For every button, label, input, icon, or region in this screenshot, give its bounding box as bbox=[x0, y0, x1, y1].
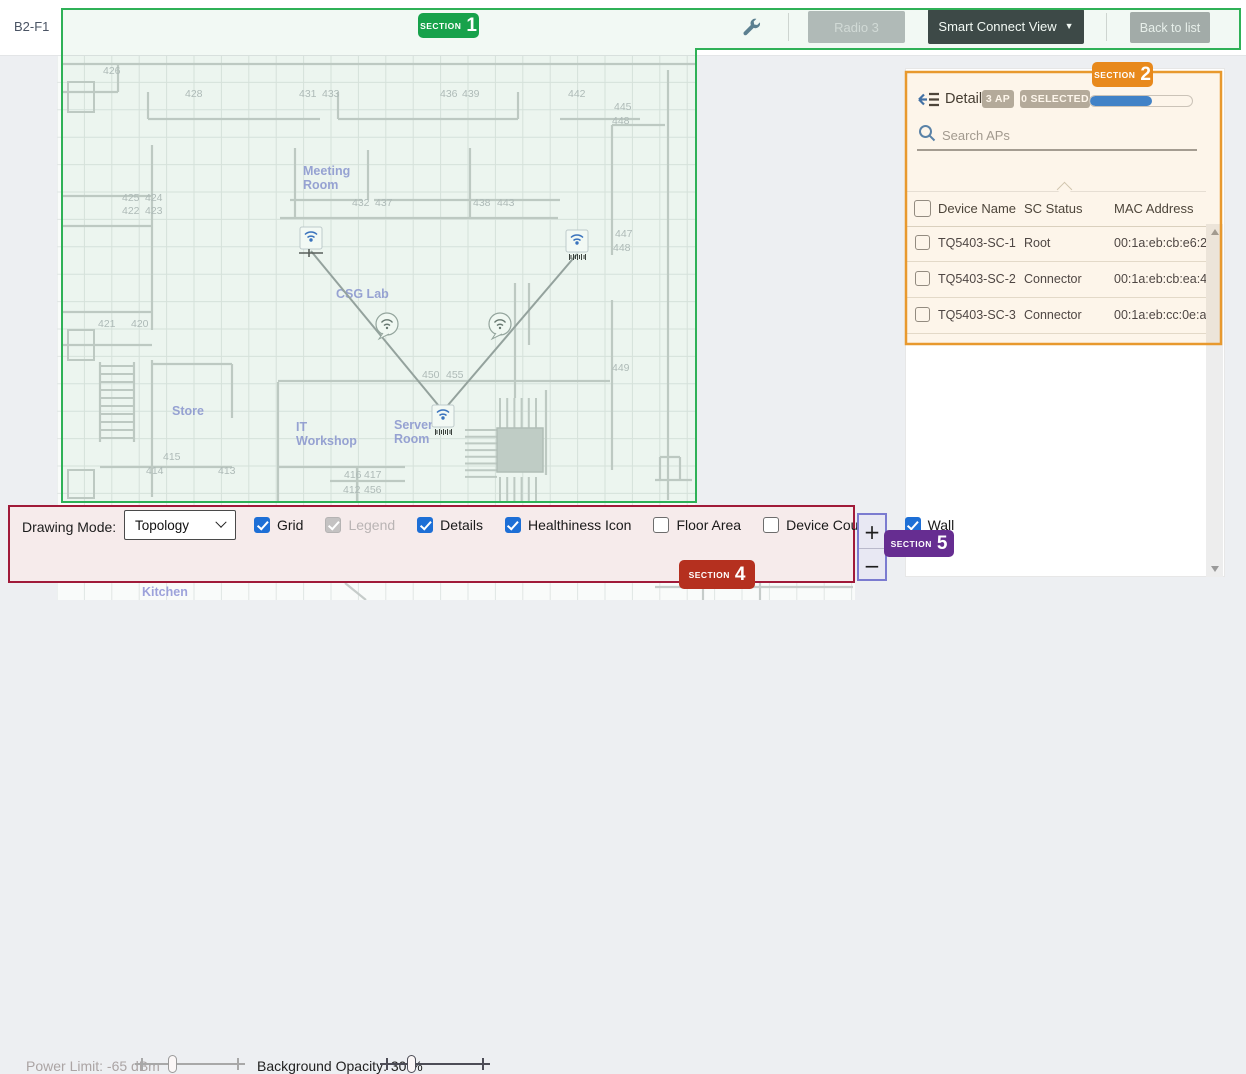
toolbar-divider bbox=[788, 13, 789, 41]
room-label: Store bbox=[172, 404, 204, 418]
room-number: 437 bbox=[375, 197, 393, 209]
checkbox-label: Healthiness Icon bbox=[528, 517, 632, 533]
view-selector-label: Smart Connect View bbox=[938, 19, 1056, 34]
checkbox-box bbox=[325, 517, 341, 533]
room-label: Server bbox=[394, 418, 433, 432]
slider-thumb[interactable] bbox=[168, 1055, 177, 1073]
cell-device-name: TQ5403-SC-2 bbox=[938, 272, 1016, 286]
table-row[interactable]: TQ5403-SC-2Connector00:1a:eb:cb:ea:40 bbox=[906, 262, 1206, 298]
progress-bar-fill bbox=[1090, 96, 1152, 106]
chevron-down-icon bbox=[215, 517, 226, 528]
drawing-options-bar: Drawing Mode: Topology GridLegendDetails… bbox=[8, 505, 855, 583]
drawing-mode-label: Drawing Mode: bbox=[22, 519, 116, 535]
cell-sc-status: Root bbox=[1024, 236, 1050, 250]
slider-thumb[interactable] bbox=[407, 1055, 416, 1073]
room-number: 428 bbox=[185, 88, 203, 100]
checkbox-healthiness-icon[interactable]: Healthiness Icon bbox=[505, 517, 632, 533]
room-number: 442 bbox=[568, 88, 586, 100]
room-number: 443 bbox=[497, 197, 515, 209]
search-input[interactable] bbox=[940, 124, 1194, 146]
room-number: 422 bbox=[122, 205, 140, 217]
floor-label: B2-F1 bbox=[14, 19, 49, 34]
ap-table-body: TQ5403-SC-1Root00:1a:eb:cb:e6:20TQ5403-S… bbox=[906, 226, 1206, 334]
room-label: Kitchen bbox=[142, 585, 188, 599]
row-checkbox[interactable] bbox=[915, 307, 930, 322]
column-mac-address[interactable]: MAC Address bbox=[1114, 201, 1193, 216]
room-number: 433 bbox=[322, 88, 340, 100]
column-sc-status[interactable]: SC Status bbox=[1024, 201, 1083, 216]
checkbox-box[interactable] bbox=[905, 517, 921, 533]
room-label: Room bbox=[303, 178, 338, 192]
room-number: 445 bbox=[614, 101, 632, 113]
collapse-panel-icon[interactable] bbox=[918, 91, 940, 113]
room-number: 447 bbox=[615, 228, 633, 240]
scroll-up-icon[interactable] bbox=[1211, 229, 1219, 235]
table-row[interactable]: TQ5403-SC-1Root00:1a:eb:cb:e6:20 bbox=[906, 226, 1206, 262]
selected-count-badge: 0 SELECTED bbox=[1020, 90, 1090, 108]
wrench-icon[interactable] bbox=[741, 17, 762, 43]
room-number: 416 bbox=[344, 469, 362, 481]
checkbox-box[interactable] bbox=[254, 517, 270, 533]
cell-sc-status: Connector bbox=[1024, 272, 1082, 286]
room-number: 423 bbox=[145, 205, 163, 217]
room-number: 436 bbox=[440, 88, 458, 100]
cell-sc-status: Connector bbox=[1024, 308, 1082, 322]
room-number: 414 bbox=[146, 465, 164, 477]
room-number: 450 bbox=[422, 369, 440, 381]
room-number: 415 bbox=[163, 451, 181, 463]
map-mask bbox=[695, 55, 855, 505]
checkbox-box[interactable] bbox=[653, 517, 669, 533]
panel-scrollbar[interactable] bbox=[1206, 224, 1223, 577]
column-device-name[interactable]: Device Name bbox=[938, 201, 1016, 216]
room-number: 424 bbox=[145, 192, 163, 204]
room-number: 455 bbox=[446, 369, 464, 381]
select-all-checkbox[interactable] bbox=[914, 200, 931, 217]
room-number: 456 bbox=[364, 484, 382, 496]
checkbox-label: Details bbox=[440, 517, 483, 533]
room-label: Workshop bbox=[296, 434, 357, 448]
row-checkbox[interactable] bbox=[915, 235, 930, 250]
room-number: 417 bbox=[364, 469, 382, 481]
wifi-dot bbox=[499, 327, 501, 329]
scroll-down-icon[interactable] bbox=[1211, 566, 1219, 572]
zoom-out-button[interactable]: − bbox=[859, 549, 885, 582]
room-number: 438 bbox=[473, 197, 491, 209]
layer-checkbox-group: GridLegendDetailsHealthiness IconFloor A… bbox=[254, 507, 954, 543]
room-number: 448 bbox=[612, 115, 630, 127]
slider-tick bbox=[386, 1058, 388, 1070]
checkbox-legend: Legend bbox=[325, 517, 395, 533]
room-number: 420 bbox=[131, 318, 149, 330]
checkbox-wall[interactable]: Wall bbox=[905, 517, 955, 533]
drawing-mode-value: Topology bbox=[135, 518, 189, 533]
search-underline bbox=[917, 149, 1197, 151]
room-label: IT bbox=[296, 420, 307, 434]
view-selector-button[interactable]: Smart Connect View ▼ bbox=[928, 9, 1084, 44]
ap-count-badge: 3 AP bbox=[982, 90, 1014, 108]
cell-mac-address: 00:1a:eb:cb:e6:20 bbox=[1114, 236, 1214, 250]
checkbox-box[interactable] bbox=[763, 517, 779, 533]
cell-device-name: TQ5403-SC-1 bbox=[938, 236, 1016, 250]
room-number: 412 bbox=[343, 484, 361, 496]
room-number: 425 bbox=[122, 192, 140, 204]
toolbar-divider bbox=[1106, 13, 1107, 41]
slider-tick bbox=[237, 1058, 239, 1070]
table-header: Device Name SC Status MAC Address bbox=[906, 192, 1206, 227]
checkbox-details[interactable]: Details bbox=[417, 517, 483, 533]
room-number: 421 bbox=[98, 318, 116, 330]
room-number: 426 bbox=[103, 65, 121, 77]
power-limit-slider[interactable] bbox=[135, 1054, 245, 1074]
slider-track bbox=[380, 1063, 490, 1065]
room-number: 439 bbox=[462, 88, 480, 100]
room-number: 431 bbox=[299, 88, 317, 100]
room-label: Room bbox=[394, 432, 429, 446]
checkbox-box[interactable] bbox=[505, 517, 521, 533]
wifi-dot bbox=[386, 327, 388, 329]
radio-3-button[interactable]: Radio 3 bbox=[808, 11, 905, 43]
top-toolbar: B2-F1 Radio 3 Smart Connect View ▼ Back … bbox=[0, 0, 1246, 56]
checkbox-label: Legend bbox=[348, 517, 395, 533]
opacity-slider[interactable] bbox=[380, 1054, 490, 1074]
slider-tick bbox=[141, 1058, 143, 1070]
map-zoom-control: + − bbox=[857, 513, 887, 581]
row-checkbox[interactable] bbox=[915, 271, 930, 286]
zoom-in-button[interactable]: + bbox=[859, 515, 885, 548]
room-number: 448 bbox=[613, 242, 631, 254]
cell-mac-address: 00:1a:eb:cb:ea:40 bbox=[1114, 272, 1214, 286]
table-row[interactable]: TQ5403-SC-3Connector00:1a:eb:cc:0e:a0 bbox=[906, 298, 1206, 334]
checkbox-label: Grid bbox=[277, 517, 303, 533]
room-number: 449 bbox=[612, 362, 630, 374]
search-icon bbox=[918, 124, 936, 147]
room-label: CSG Lab bbox=[336, 287, 389, 301]
drawing-mode-select[interactable]: Topology bbox=[124, 510, 236, 540]
room-number: 432 bbox=[352, 197, 370, 209]
checkbox-label: Wall bbox=[928, 517, 955, 533]
back-to-list-button[interactable]: Back to list bbox=[1130, 12, 1210, 43]
checkbox-box[interactable] bbox=[417, 517, 433, 533]
room-label: Meeting bbox=[303, 164, 350, 178]
access-point-icon[interactable] bbox=[299, 227, 323, 257]
progress-bar bbox=[1089, 95, 1193, 107]
checkbox-floor-area[interactable]: Floor Area bbox=[653, 517, 741, 533]
cell-device-name: TQ5403-SC-3 bbox=[938, 308, 1016, 322]
details-panel: Details 3 AP 0 SELECTED Device Name SC S… bbox=[905, 68, 1225, 577]
slider-track bbox=[135, 1063, 245, 1065]
caret-down-icon: ▼ bbox=[1065, 22, 1074, 31]
slider-tick bbox=[482, 1058, 484, 1070]
room-number: 413 bbox=[218, 465, 236, 477]
elevator-shaft bbox=[497, 428, 543, 472]
checkbox-grid[interactable]: Grid bbox=[254, 517, 303, 533]
cell-mac-address: 00:1a:eb:cc:0e:a0 bbox=[1114, 308, 1213, 322]
checkbox-label: Floor Area bbox=[676, 517, 741, 533]
